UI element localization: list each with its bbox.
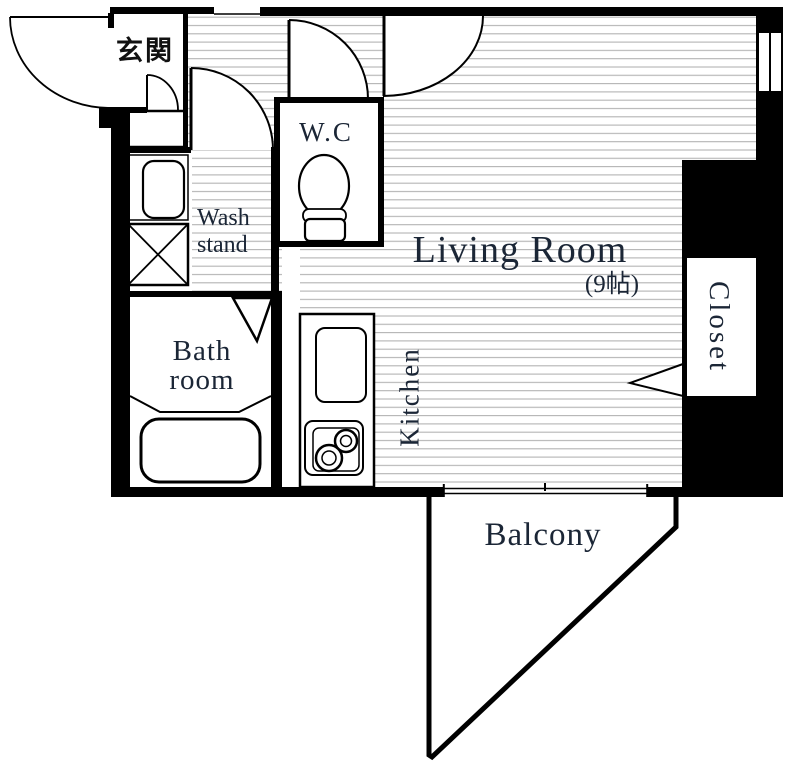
closet-label: Closet (703, 281, 735, 373)
entrance-right-wall (183, 7, 188, 150)
kitchen-sink (316, 328, 366, 402)
washroom-right-wall (271, 147, 279, 297)
bathroom-label-line2: room (169, 364, 234, 396)
pipe-shaft-slot (759, 33, 769, 91)
top-wall (260, 7, 783, 16)
balcony-label: Balcony (485, 517, 602, 553)
bottom-wall-right (648, 487, 783, 497)
wash-stand-label-line1: Wash (197, 205, 250, 231)
entrance-label: 玄関 (116, 35, 174, 66)
bottom-wall-left (111, 487, 443, 497)
bathroom-right-wall (271, 291, 282, 487)
pipe-shaft-slot (771, 33, 781, 91)
kitchen-label: Kitchen (394, 347, 424, 446)
floor-plan-svg: 玄関 W.C Wash stand Bath room Living Room … (0, 0, 800, 771)
toilet (299, 155, 349, 241)
wc-label: W.C (299, 117, 353, 147)
floor-plan: 玄関 W.C Wash stand Bath room Living Room … (0, 0, 800, 771)
top-wall-thin (110, 7, 214, 14)
bath-corridor (282, 247, 300, 487)
bathroom-top-wall (111, 291, 282, 297)
wall-stub (99, 107, 113, 128)
washroom (124, 153, 192, 291)
living-room-size-label: (9帖) (585, 270, 639, 298)
kitchen-counter (300, 314, 374, 487)
wash-stand-label-line2: stand (197, 232, 248, 258)
left-wall (111, 107, 130, 497)
balcony-window (443, 483, 648, 497)
living-room-label: Living Room (413, 229, 628, 271)
kitchen-stove (305, 421, 363, 475)
bathroom-label-line1: Bath (173, 335, 232, 367)
washing-machine-pan (128, 224, 188, 285)
washroom-top-wall (111, 147, 191, 153)
bathtub (141, 419, 260, 482)
entrance-step (125, 111, 185, 147)
wash-basin (143, 161, 184, 218)
